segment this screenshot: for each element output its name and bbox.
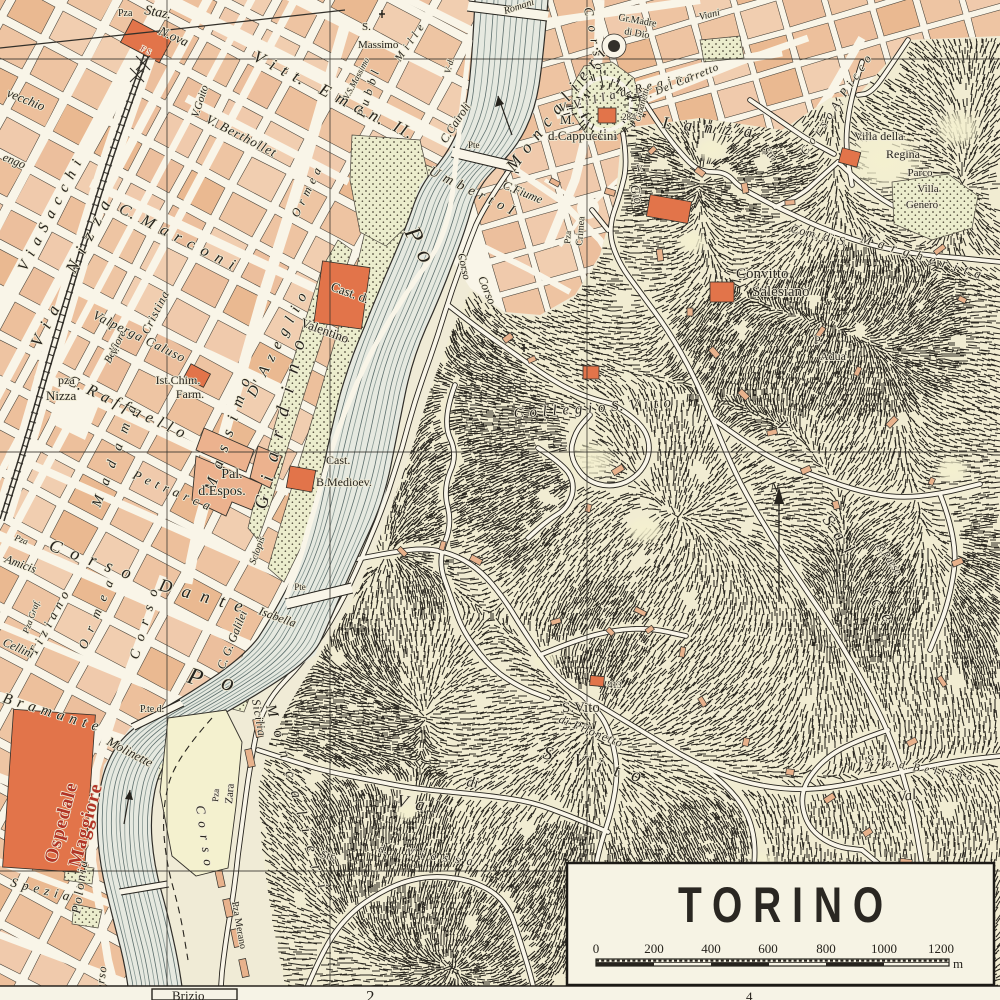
svg-text:1000: 1000 bbox=[871, 941, 897, 956]
svg-text:d.Cappuccini: d.Cappuccini bbox=[548, 128, 617, 143]
svg-text:Massimo: Massimo bbox=[358, 39, 399, 51]
svg-text:800: 800 bbox=[816, 941, 836, 956]
svg-text:Pte: Pte bbox=[294, 582, 306, 592]
svg-text:4: 4 bbox=[746, 989, 753, 1000]
svg-text:N: N bbox=[769, 481, 780, 496]
svg-text:Brizio: Brizio bbox=[172, 988, 205, 1000]
svg-text:Villa della: Villa della bbox=[854, 129, 904, 143]
svg-text:600: 600 bbox=[758, 941, 778, 956]
svg-text:Genero: Genero bbox=[906, 199, 939, 211]
svg-text:Parco: Parco bbox=[907, 167, 933, 179]
svg-text:pza: pza bbox=[58, 373, 75, 387]
svg-text:Farm.: Farm. bbox=[176, 387, 204, 401]
svg-text:Pte: Pte bbox=[468, 140, 480, 150]
svg-text:Villa: Villa bbox=[917, 183, 938, 195]
svg-text:Zara: Zara bbox=[223, 783, 237, 804]
svg-text:d.Espos.: d.Espos. bbox=[198, 484, 245, 499]
svg-text:S.: S. bbox=[362, 21, 371, 33]
svg-text:Convitto: Convitto bbox=[736, 266, 789, 282]
svg-text:Regina: Regina bbox=[886, 147, 921, 161]
svg-text:2: 2 bbox=[366, 987, 375, 1000]
svg-text:Nizza: Nizza bbox=[46, 388, 77, 403]
svg-text:V.: V. bbox=[636, 164, 644, 175]
svg-text:0: 0 bbox=[593, 941, 600, 956]
svg-text:P.te d.: P.te d. bbox=[140, 704, 164, 715]
svg-text:Str.: Str. bbox=[319, 847, 337, 864]
svg-text:400: 400 bbox=[701, 941, 721, 956]
svg-text:Adua: Adua bbox=[820, 349, 847, 363]
svg-text:Salesiano: Salesiano bbox=[752, 284, 810, 300]
svg-text:B.Medioev.: B.Medioev. bbox=[316, 475, 372, 489]
svg-text:m: m bbox=[953, 956, 963, 971]
svg-text:1200: 1200 bbox=[928, 941, 954, 956]
svg-text:Pza: Pza bbox=[562, 230, 573, 244]
svg-text:Pal.: Pal. bbox=[221, 467, 242, 482]
svg-text:Ist.Chim.: Ist.Chim. bbox=[156, 373, 201, 387]
svg-text:Pza: Pza bbox=[118, 8, 133, 19]
svg-text:TORINO: TORINO bbox=[678, 877, 894, 933]
svg-text:413: 413 bbox=[608, 680, 622, 690]
svg-text:P.: P. bbox=[814, 333, 822, 347]
svg-text:Val: Val bbox=[896, 787, 918, 806]
svg-text:200: 200 bbox=[644, 941, 664, 956]
svg-text:Pza: Pza bbox=[210, 788, 221, 802]
svg-text:Cast.: Cast. bbox=[326, 453, 350, 467]
